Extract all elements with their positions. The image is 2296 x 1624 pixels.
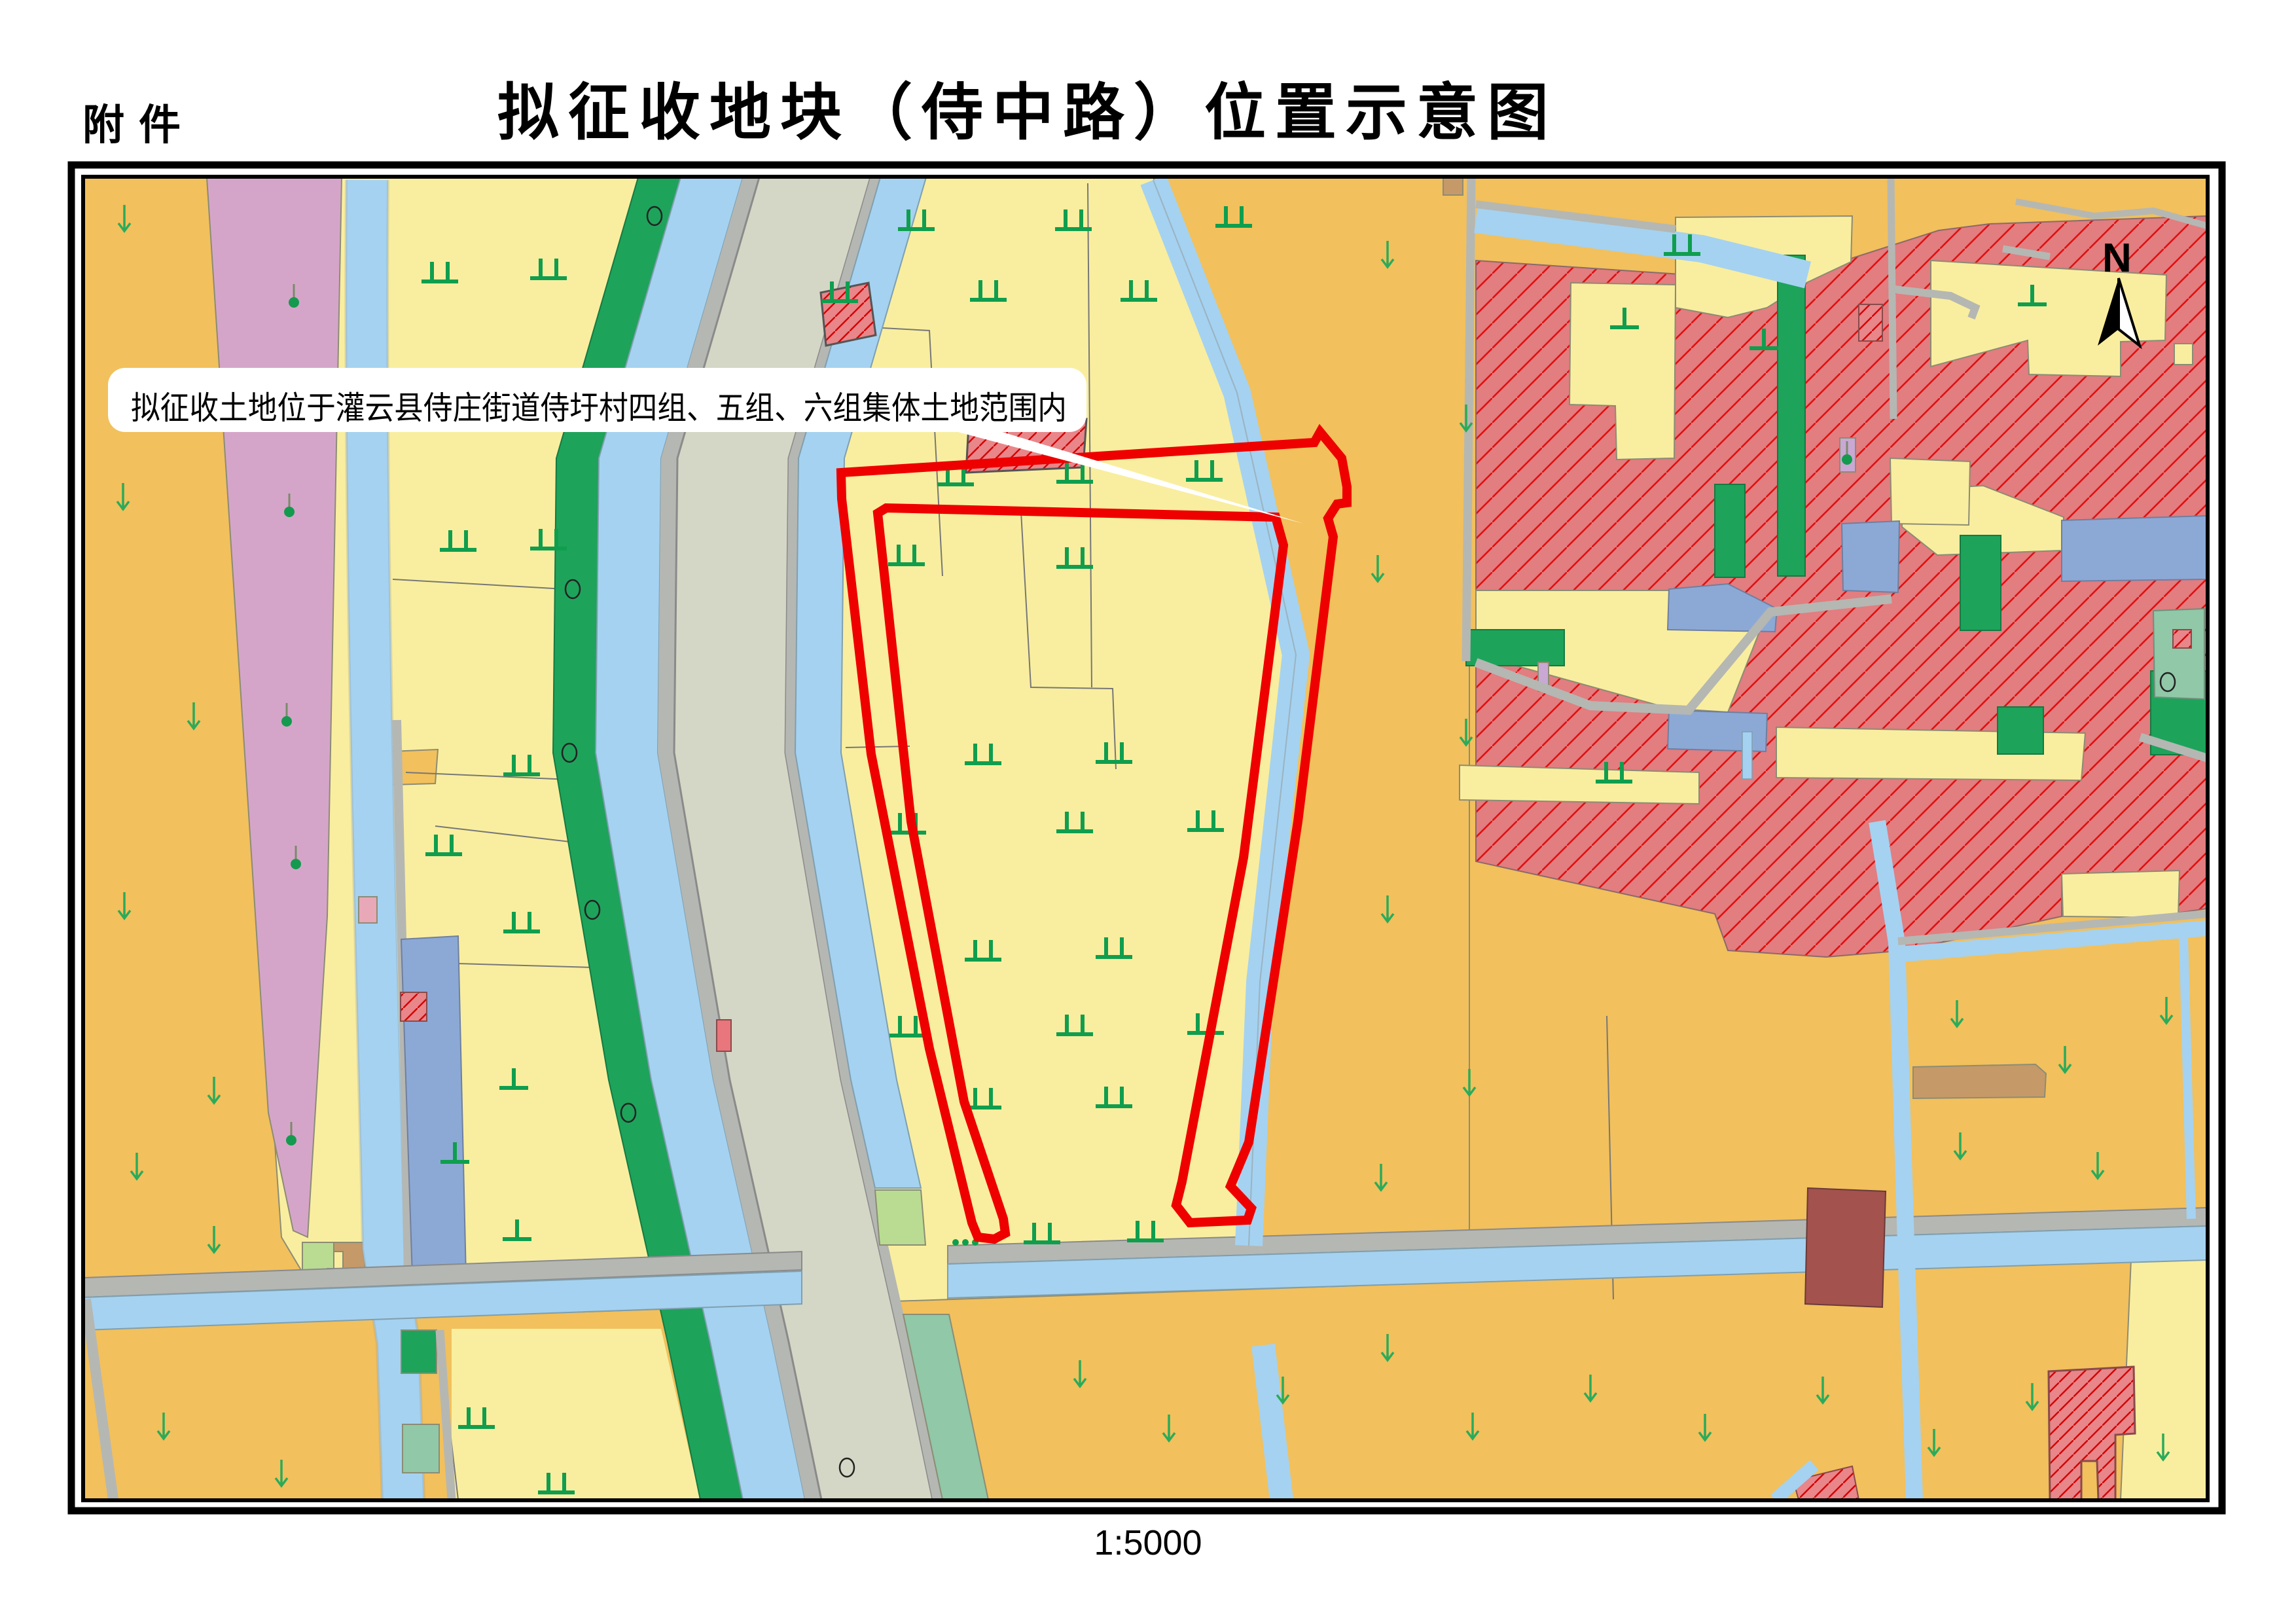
pond-strip <box>401 936 466 1276</box>
annotation-text: 拟征收土地位于灌云县侍庄街道侍圩村四组、五组、六组集体土地范围内 <box>131 390 1067 426</box>
brown-bar-parcel <box>1913 1064 2046 1098</box>
small-building <box>401 992 427 1021</box>
urban-area <box>1460 177 2213 957</box>
corridor-lightgreen-parcel <box>875 1190 925 1245</box>
bottom-paddy-field <box>452 1329 700 1500</box>
tiny-pink-parcel <box>359 897 377 923</box>
north-label: N <box>2102 236 2132 281</box>
tiny-red-parcel <box>717 1020 731 1051</box>
map-canvas: 拟征收土地位于灌云县侍庄街道侍圩村四组、五组、六组集体土地范围内 N <box>84 171 2213 1500</box>
maroon-parcel <box>1805 1188 1886 1307</box>
scale-label: 1:5000 <box>0 1523 2296 1563</box>
location-map: 拟征收土地位于灌云县侍庄街道侍圩村四组、五组、六组集体土地范围内 N <box>0 0 2296 1624</box>
small-building <box>1859 304 1882 341</box>
